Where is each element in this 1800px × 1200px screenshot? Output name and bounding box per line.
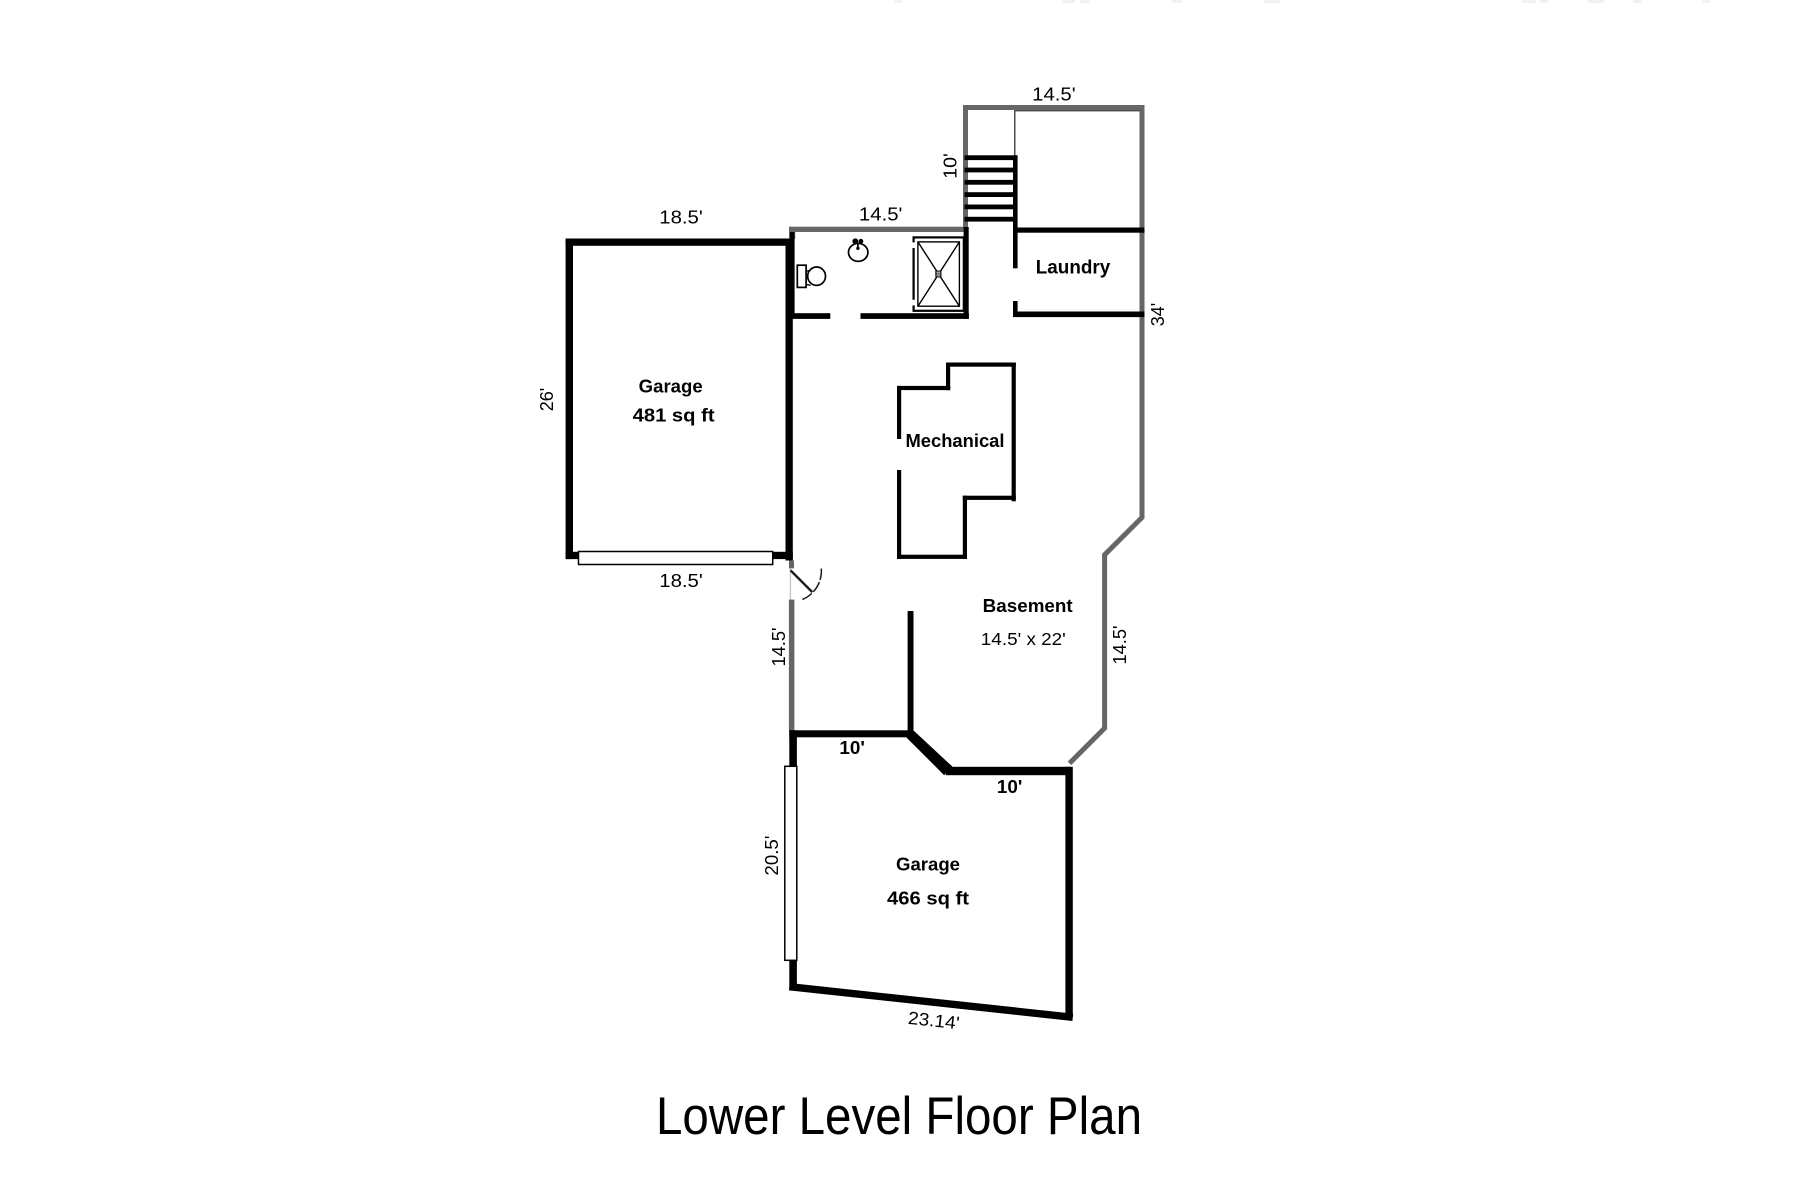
svg-text:20.5': 20.5' bbox=[762, 836, 782, 876]
svg-text:Mechanical: Mechanical bbox=[906, 431, 1005, 451]
svg-text:10': 10' bbox=[839, 738, 865, 758]
svg-text:Laundry: Laundry bbox=[1036, 258, 1111, 279]
svg-text:Basement: Basement bbox=[983, 596, 1073, 616]
svg-text:18.5': 18.5' bbox=[659, 207, 703, 227]
svg-text:481 sq ft: 481 sq ft bbox=[633, 406, 715, 426]
svg-text:14.5': 14.5' bbox=[769, 628, 789, 667]
svg-text:14.5': 14.5' bbox=[859, 205, 903, 225]
svg-text:10': 10' bbox=[997, 777, 1023, 797]
svg-text:Lower Level Floor Plan: Lower Level Floor Plan bbox=[656, 1087, 1142, 1146]
svg-text:466 sq ft: 466 sq ft bbox=[887, 889, 969, 909]
svg-text:26': 26' bbox=[537, 388, 557, 411]
svg-text:18.5': 18.5' bbox=[659, 571, 703, 591]
svg-text:Garage: Garage bbox=[639, 377, 703, 397]
svg-text:14.5' x 22': 14.5' x 22' bbox=[981, 629, 1066, 649]
svg-text:34': 34' bbox=[1148, 303, 1168, 326]
svg-text:14.5': 14.5' bbox=[1032, 84, 1076, 104]
svg-text:10': 10' bbox=[941, 153, 961, 179]
svg-text:14.5': 14.5' bbox=[1110, 626, 1130, 665]
svg-text:Garage: Garage bbox=[896, 855, 960, 875]
